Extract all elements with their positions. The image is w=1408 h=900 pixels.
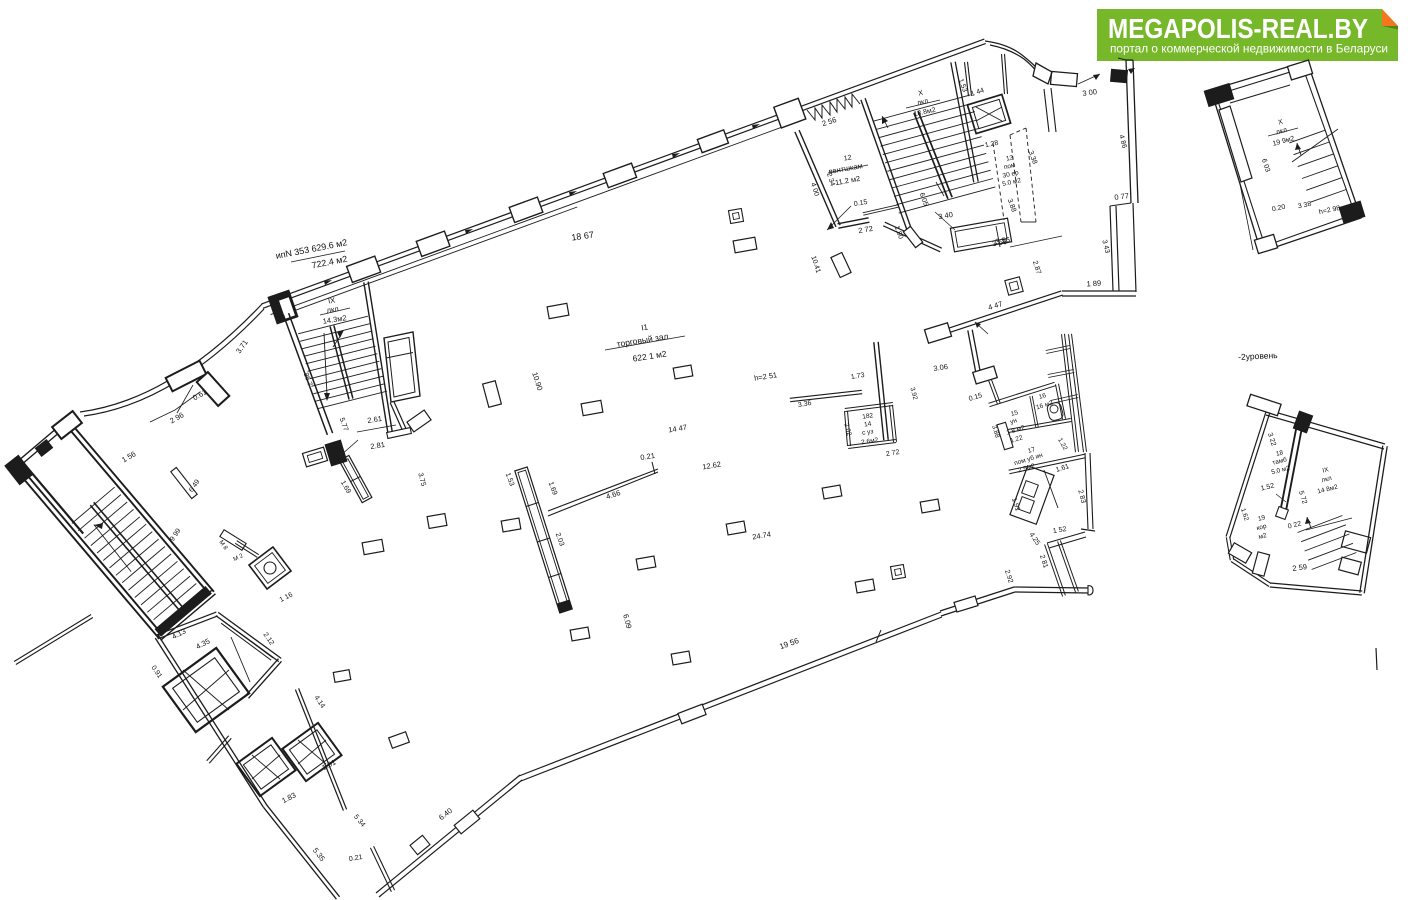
svg-text:1 89: 1 89 [1086,279,1101,289]
svg-text:-2уровень: -2уровень [1238,350,1278,362]
svg-text:портал о коммерческой недвижим: портал о коммерческой недвижимости в Бел… [1110,42,1388,56]
svg-text:MEGAPOLIS-REAL.BY: MEGAPOLIS-REAL.BY [1108,13,1368,44]
svg-text:12: 12 [843,154,852,162]
svg-text:14: 14 [864,420,873,428]
